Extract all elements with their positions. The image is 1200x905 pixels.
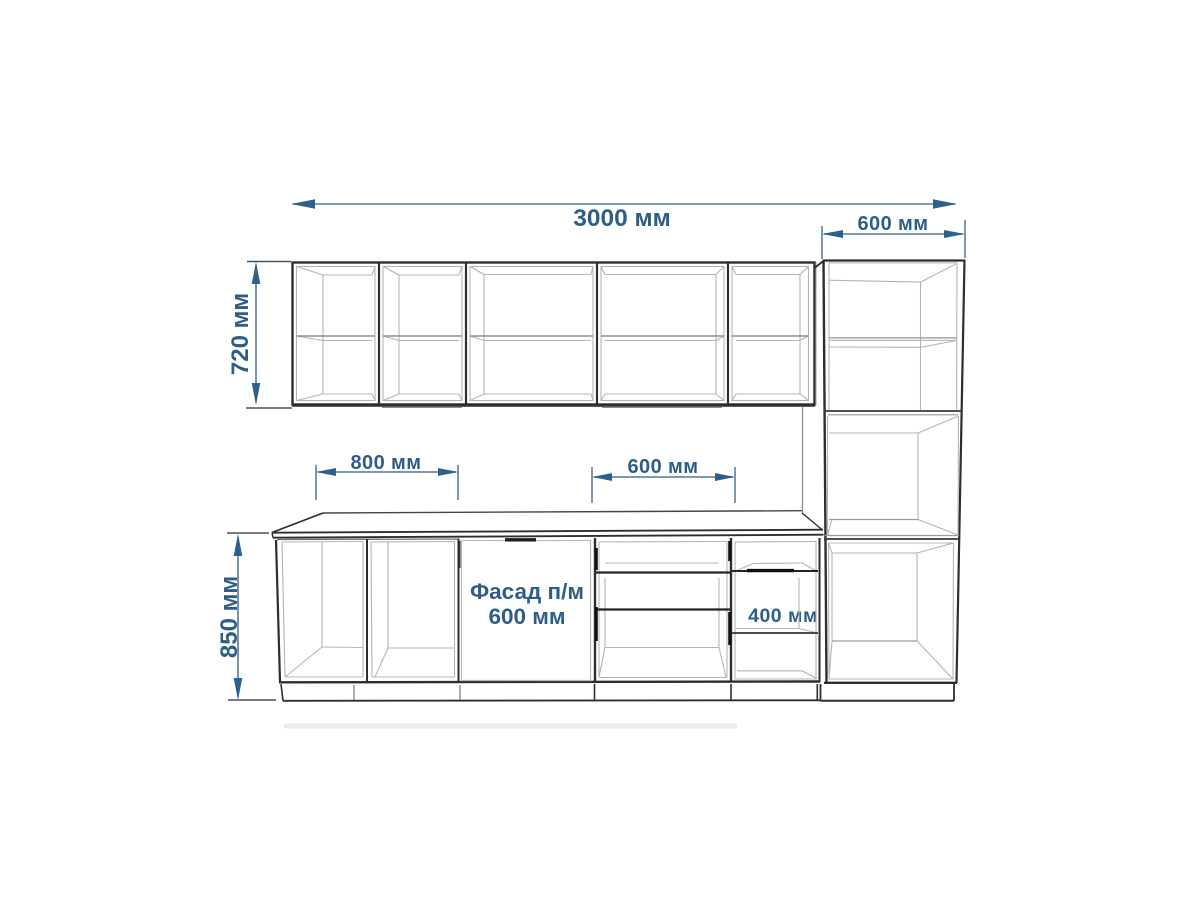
svg-text:600 мм: 600 мм: [628, 456, 699, 478]
svg-text:600 мм: 600 мм: [858, 213, 929, 235]
svg-text:3000 мм: 3000 мм: [573, 205, 671, 232]
svg-text:800 мм: 800 мм: [351, 452, 422, 474]
svg-text:600 мм: 600 мм: [488, 604, 565, 629]
svg-text:720 мм: 720 мм: [227, 293, 254, 375]
svg-text:Фасад п/м: Фасад п/м: [470, 579, 584, 604]
svg-text:850 мм: 850 мм: [216, 576, 243, 658]
svg-text:400 мм: 400 мм: [748, 605, 818, 627]
